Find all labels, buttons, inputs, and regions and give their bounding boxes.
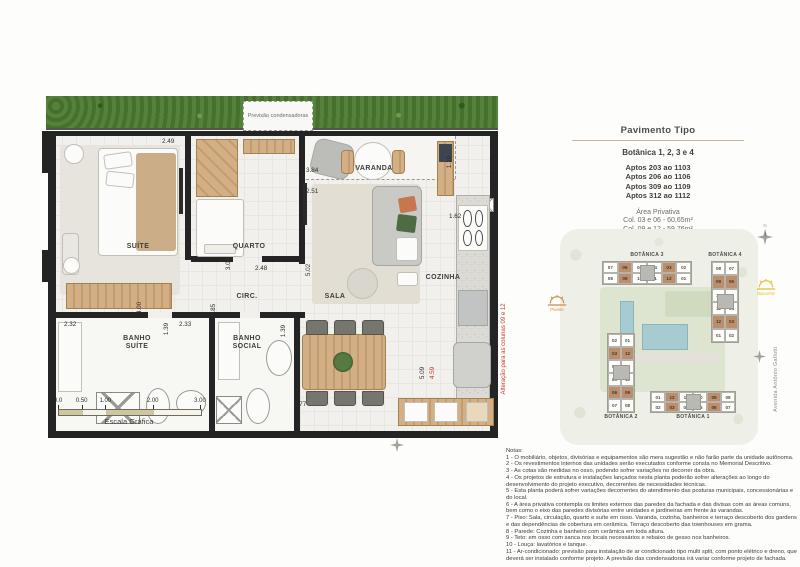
wall-banho-social-right: [294, 318, 300, 431]
door-banho-social: [240, 312, 260, 318]
notes-list-item: 3 - As cotas são medidas no osso, podend…: [506, 468, 798, 475]
dim-quarto-depth: 3.04: [225, 254, 233, 274]
dim-sala-depth: 5.02: [305, 260, 313, 280]
column-left-top: [42, 131, 50, 173]
dim-suite-top: 2.49: [162, 138, 174, 145]
suite-pillow-2: [105, 171, 134, 189]
notes-title: Notas:: [506, 448, 798, 455]
wall-right: [490, 131, 498, 438]
building-label: BOTÂNICA 1: [650, 414, 736, 420]
core-botanica-3: [640, 265, 655, 281]
fridge: [453, 342, 491, 388]
sunset-label: Poente: [550, 307, 564, 312]
unit-cell: 08: [721, 392, 735, 402]
room-label-circ: CIRC.: [226, 293, 268, 301]
dining-plant: [333, 352, 353, 372]
scale-caption: Escala Gráfica: [58, 417, 200, 426]
unit-cell: 01: [676, 273, 691, 284]
wall-suite-quarto: [185, 134, 191, 260]
plan-compass-icon: [390, 438, 404, 452]
notes-list-item: 2 - Os revestimentos internos das unidad…: [506, 461, 798, 468]
banho-suite-vanity: [58, 322, 82, 392]
unit-cell: 07: [603, 262, 618, 273]
door-banho-suite: [148, 312, 172, 318]
scale-tick-mark: [105, 405, 106, 409]
sofa-pillow-orange: [398, 196, 417, 214]
scale-tick-label: 0.0: [50, 398, 66, 404]
dim-banho-suite-width: 2.32: [64, 321, 76, 328]
dim-quarto-width: 2.48: [255, 265, 267, 272]
north-compass-icon: N: [757, 224, 773, 245]
towers-subtitle: Botânica 1, 2, 3 e 4: [563, 148, 753, 157]
unit-cell: 02: [651, 402, 665, 412]
unit-cell: 09: [618, 273, 633, 284]
quarto-wardrobe: [196, 139, 238, 197]
suite-stool: [63, 257, 80, 274]
room-label-suite: SUÍTE: [113, 243, 163, 251]
core-botanica-4: [717, 294, 734, 309]
core-botanica-1: [686, 394, 701, 410]
notes-list-item: 9 - Teto: em osso com sanca nos locais n…: [506, 535, 798, 542]
unit-cell: 08: [621, 399, 634, 412]
unit-cell: 02: [676, 262, 691, 273]
wall-left: [48, 131, 56, 438]
unit-cell: 07: [608, 399, 621, 412]
stove-burners: [459, 206, 487, 250]
unit-cell: 12: [621, 347, 634, 360]
scale-tick-label: 3.00: [192, 398, 208, 404]
scale-tick-label: 0.50: [74, 398, 90, 404]
room-label-banho-social: BANHO SOCIAL: [222, 335, 272, 351]
unit-cell: 09: [712, 275, 725, 288]
notes-list-item: 11 - Ar-condicionado: previsão para inst…: [506, 549, 798, 562]
dim-banho-social-depth: 1.39: [280, 321, 288, 341]
laundry-sink-1: [404, 402, 428, 422]
building-label: BOTÂNICA 3: [602, 252, 692, 258]
unit-cell: 09: [707, 392, 721, 402]
dim-varanda-depth: 1.19: [446, 152, 454, 172]
unit-cell: 07: [725, 262, 738, 275]
unit-cell: 02: [608, 334, 621, 347]
dining-chair-3: [362, 320, 384, 335]
room-label-quarto: QUARTO: [220, 243, 278, 251]
room-label-cozinha: COZINHA: [418, 274, 468, 282]
dim-varanda-width: 3.84: [306, 167, 318, 174]
area-privativa-lines-item: Col. 03 e 06 - 60,65m²: [563, 216, 753, 225]
dim-cozinha-width: 1.62: [449, 213, 461, 220]
building-label: BOTÂNICA 2: [599, 414, 643, 420]
unit-cell: 03: [662, 262, 677, 273]
aptos-list: Aptos 203 ao 1103Aptos 206 ao 1106Aptos …: [563, 163, 753, 201]
unit-cell: 03: [665, 402, 679, 412]
varanda-side-boundary: [455, 136, 456, 179]
dining-chair-4: [306, 391, 328, 406]
quarto-shelf: [243, 139, 295, 154]
dining-chair-2: [334, 320, 356, 335]
wall-top: [48, 131, 498, 136]
room-label-banho-suite: BANHO SUÍTE: [112, 335, 162, 351]
dim-sala-width: 2.51: [306, 188, 318, 195]
room-label-varanda: VARANDA: [343, 165, 405, 173]
laundry-basket: [466, 402, 488, 422]
wall-bath-top: [55, 312, 305, 318]
dim-cozinha-depth-alt: 4.59: [429, 363, 437, 383]
unit-cell: 12: [662, 273, 677, 284]
room-label-sala: SALA: [314, 293, 356, 301]
notes-list-item: 5 - Esta planta poderá sofrer variações …: [506, 488, 798, 501]
sunset-icon: Poente: [543, 294, 571, 312]
scale-tick-mark: [82, 405, 83, 409]
wall-bath-divider: [209, 318, 215, 431]
unit-cell: 01: [621, 334, 634, 347]
notes-list-item: 10 - Louça: lavatórios e tanque.: [506, 542, 798, 549]
condensers-box: Previsão condensadoras: [243, 101, 313, 131]
notes-list-item: 4 - Os projetos de estrutura e instalaçõ…: [506, 475, 798, 488]
area-privativa-title: Área Privativa: [563, 209, 753, 216]
unit-cell: 08: [603, 273, 618, 284]
scale-bar-segments: [58, 409, 202, 416]
scale-tick-mark: [200, 405, 201, 409]
notes-list: 1 - O mobiliário, objetos, divisórias e …: [506, 455, 798, 563]
aptos-list-item: Aptos 206 ao 1106: [563, 172, 753, 181]
notes-list-item: 6 - A área privativa contempla os limite…: [506, 502, 798, 515]
dim-circ-width: 0.85: [210, 300, 218, 320]
street-marker-icon: [753, 350, 766, 368]
unit-cell: 08: [712, 262, 725, 275]
unit-cell: 12: [665, 392, 679, 402]
unit-cell: 07: [721, 402, 735, 412]
notes-list-item: 1 - O mobiliário, objetos, divisórias e …: [506, 455, 798, 462]
unit-cell: 03: [608, 347, 621, 360]
banho-social-shower: [216, 396, 242, 424]
garden-patch: [665, 291, 715, 317]
pool-2: [642, 324, 688, 350]
alteration-note: Alteração para as colunas 09 e 12: [501, 278, 507, 420]
varanda-boundary: [306, 179, 455, 180]
dim-cozinha-depth: 5.09: [419, 363, 427, 383]
wall-quarto-bottom-b: [262, 256, 305, 262]
building-label: BOTÂNICA 4: [705, 252, 745, 258]
stove: [458, 205, 488, 251]
column-left-mid: [42, 250, 50, 282]
notes-block: Notas: 1 - O mobiliário, objetos, divisó…: [506, 448, 798, 562]
unit-cell: 03: [725, 315, 738, 328]
suite-wardrobe: [66, 283, 172, 309]
title-rule: [572, 140, 744, 141]
unit-cell: 02: [725, 329, 738, 342]
street-name: Avenida Antônio Gallotti: [773, 292, 779, 412]
unit-cell: 06: [707, 402, 721, 412]
suite-bed-blanket: [136, 153, 176, 251]
unit-cell: 12: [712, 315, 725, 328]
notes-list-item: 8 - Parede: Cozinha e banheiro com cerâm…: [506, 529, 798, 536]
varanda-table: [354, 142, 392, 180]
dining-chair-1: [306, 320, 328, 335]
panel-header: Pavimento Tipo Botânica 1, 2, 3 e 4 Apto…: [563, 125, 753, 234]
unit-cell: 06: [725, 275, 738, 288]
unit-cell: 06: [618, 262, 633, 273]
notes-list-item: 7 - Piso: Sala, circulação, quarto e suí…: [506, 515, 798, 528]
unit-cell: 06: [608, 386, 621, 399]
page-title: Pavimento Tipo: [563, 125, 753, 136]
condensers-label: Previsão condensadoras: [248, 113, 309, 120]
dim-banho-social-width: 2.33: [179, 321, 191, 328]
scale-tick-label: 1.00: [97, 398, 113, 404]
aptos-list-item: Aptos 312 ao 1112: [563, 191, 753, 200]
scale-bar: Escala Gráfica 0.00.501.002.003.00: [58, 398, 200, 428]
sofa-blanket: [396, 237, 418, 261]
core-botanica-2: [613, 365, 630, 380]
aptos-list-item: Aptos 309 ao 1109: [563, 182, 753, 191]
tv-suite: [179, 168, 183, 214]
sala-console: [397, 272, 418, 286]
dining-chair-5: [334, 391, 356, 406]
laundry-sink-2: [434, 402, 458, 422]
unit-cell: 01: [712, 329, 725, 342]
dim-suite-depth: 4.00: [136, 298, 144, 318]
sofa-pillow-green: [396, 214, 417, 233]
scale-tick-label: 2.00: [145, 398, 161, 404]
dim-banho-suite-depth: 1.39: [163, 319, 171, 339]
dim-dining-width: 2.77: [294, 401, 306, 408]
unit-cell: 09: [621, 386, 634, 399]
floorplan-sheet: Previsão condensadoras: [0, 0, 800, 567]
banho-social-toilet: [246, 388, 270, 424]
unit-cell: 01: [651, 392, 665, 402]
kitchen-sink: [458, 290, 488, 326]
wall-bottom: [48, 431, 498, 438]
scale-tick-mark: [153, 405, 154, 409]
aptos-list-item: Aptos 203 ao 1103: [563, 163, 753, 172]
dining-chair-6: [362, 391, 384, 406]
scale-tick-mark: [58, 405, 59, 409]
suite-nightstand: [64, 144, 84, 164]
